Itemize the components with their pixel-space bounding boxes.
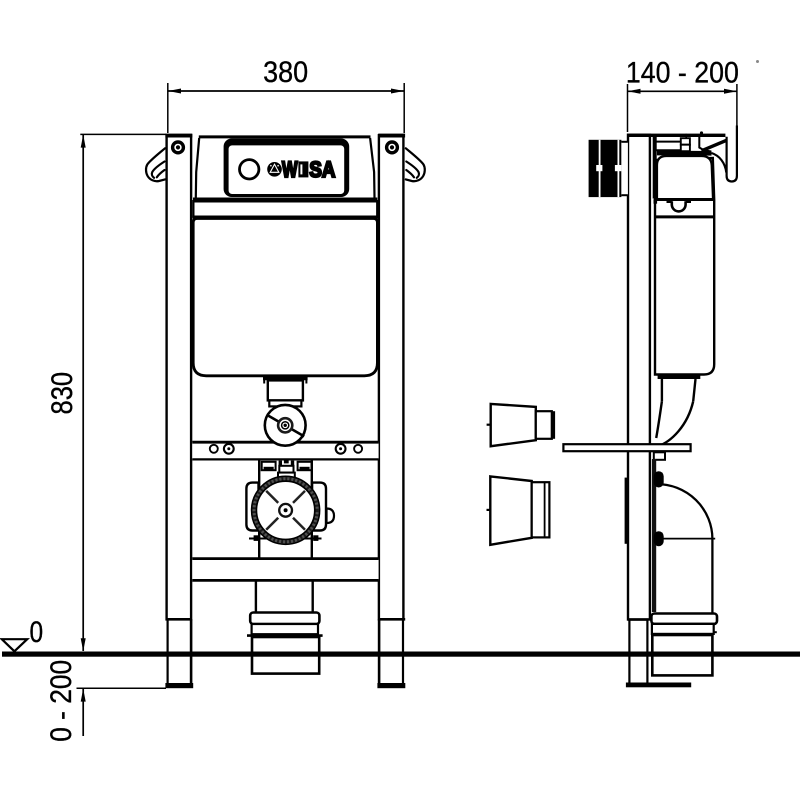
svg-text:SA: SA [309, 157, 335, 182]
svg-text:W: W [282, 157, 298, 182]
svg-text:0 - 200: 0 - 200 [45, 660, 78, 742]
svg-text:140 - 200: 140 - 200 [626, 56, 739, 89]
svg-text:380: 380 [263, 56, 308, 89]
svg-text:0: 0 [30, 616, 44, 649]
svg-text:830: 830 [46, 372, 79, 415]
